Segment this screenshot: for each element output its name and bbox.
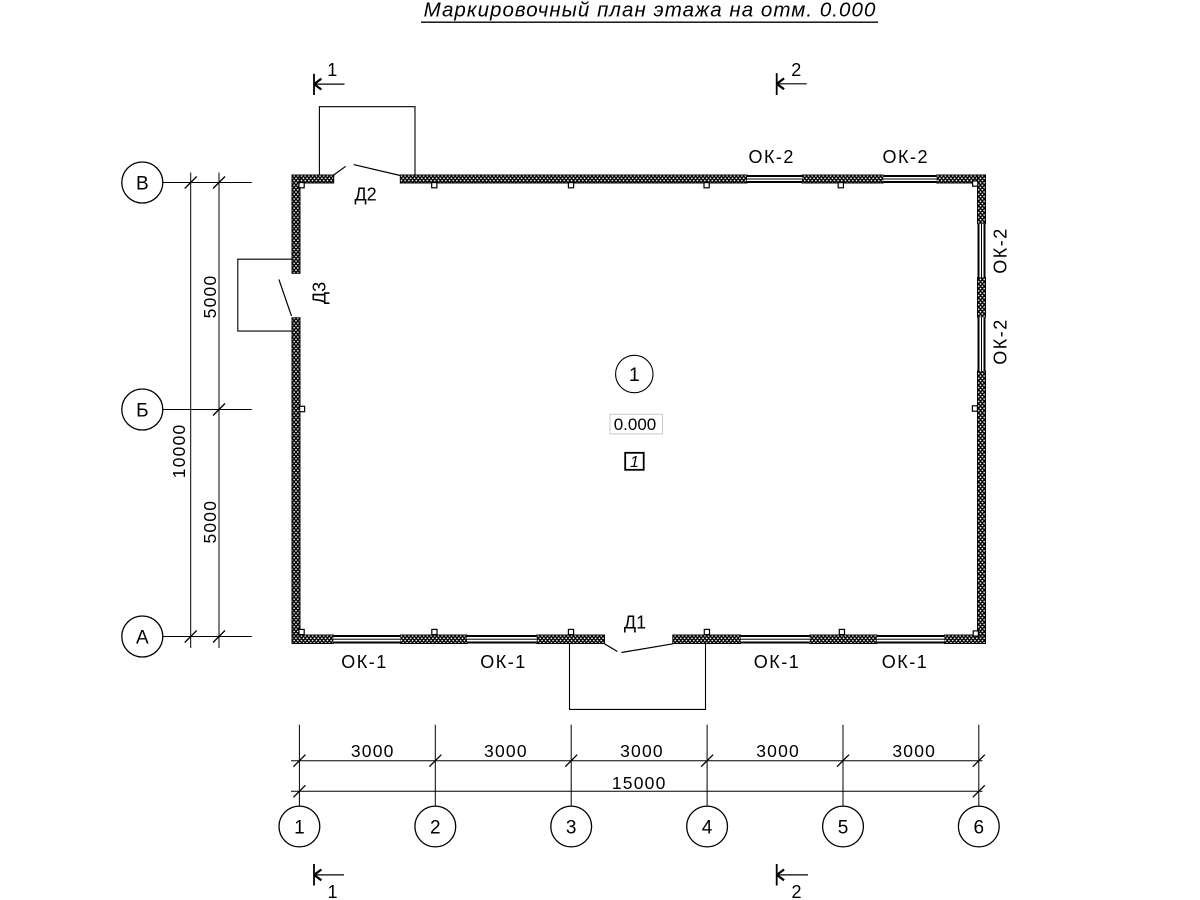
svg-text:3000: 3000 bbox=[351, 741, 395, 761]
svg-text:1: 1 bbox=[327, 882, 337, 900]
svg-text:3: 3 bbox=[566, 817, 577, 838]
svg-text:ОК-2: ОК-2 bbox=[748, 147, 795, 167]
svg-text:3000: 3000 bbox=[892, 741, 936, 761]
svg-text:1: 1 bbox=[630, 454, 639, 471]
svg-text:Д3: Д3 bbox=[309, 282, 329, 304]
svg-text:10000: 10000 bbox=[169, 424, 189, 479]
svg-text:5000: 5000 bbox=[200, 500, 220, 544]
svg-text:ОК-1: ОК-1 bbox=[882, 652, 929, 672]
svg-text:5: 5 bbox=[838, 817, 849, 838]
svg-text:Д2: Д2 bbox=[354, 184, 376, 204]
svg-text:5000: 5000 bbox=[200, 275, 220, 319]
svg-text:1: 1 bbox=[629, 364, 640, 386]
svg-text:0.000: 0.000 bbox=[614, 415, 657, 434]
svg-text:3000: 3000 bbox=[484, 741, 528, 761]
svg-text:4: 4 bbox=[702, 817, 713, 838]
svg-text:2: 2 bbox=[791, 60, 801, 80]
svg-text:6: 6 bbox=[974, 817, 985, 838]
svg-text:А: А bbox=[136, 627, 149, 648]
svg-text:ОК-2: ОК-2 bbox=[883, 147, 930, 167]
svg-text:ОК-1: ОК-1 bbox=[480, 652, 527, 672]
svg-text:ОК-2: ОК-2 bbox=[991, 227, 1011, 274]
svg-text:ОК-1: ОК-1 bbox=[754, 652, 801, 672]
svg-text:1: 1 bbox=[294, 817, 305, 838]
svg-text:Б: Б bbox=[136, 400, 148, 421]
svg-text:2: 2 bbox=[791, 882, 801, 900]
svg-text:1: 1 bbox=[327, 60, 337, 80]
svg-text:3000: 3000 bbox=[620, 741, 664, 761]
svg-text:Маркировочный план этажа на от: Маркировочный план этажа на отм. 0.000 bbox=[424, 0, 877, 22]
svg-text:3000: 3000 bbox=[756, 741, 800, 761]
svg-text:ОК-2: ОК-2 bbox=[991, 318, 1011, 365]
svg-text:2: 2 bbox=[430, 817, 441, 838]
svg-text:15000: 15000 bbox=[612, 773, 667, 793]
svg-text:ОК-1: ОК-1 bbox=[341, 652, 388, 672]
svg-text:В: В bbox=[136, 173, 149, 194]
svg-text:Д1: Д1 bbox=[624, 612, 646, 632]
